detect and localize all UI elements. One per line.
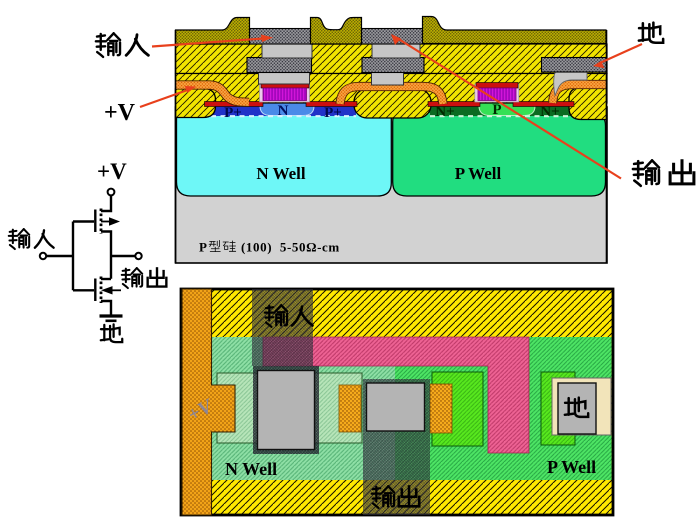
svg-text:N Well: N Well	[256, 164, 306, 183]
svg-text:P Well: P Well	[455, 164, 502, 183]
svg-text:N Well: N Well	[225, 459, 277, 479]
svg-text:P: P	[199, 240, 207, 255]
svg-text:(100) 5-50Ω-cm: (100) 5-50Ω-cm	[241, 240, 340, 255]
svg-text:P Well: P Well	[547, 457, 596, 477]
svg-text:+V: +V	[104, 100, 136, 126]
svg-text:N+: N+	[435, 104, 454, 120]
svg-text:P+: P+	[224, 105, 242, 121]
svg-text:N+: N+	[540, 104, 559, 120]
svg-text:N: N	[278, 103, 289, 119]
svg-text:P: P	[492, 102, 501, 118]
svg-text:P+: P+	[324, 105, 342, 121]
svg-text:+V: +V	[97, 159, 127, 184]
